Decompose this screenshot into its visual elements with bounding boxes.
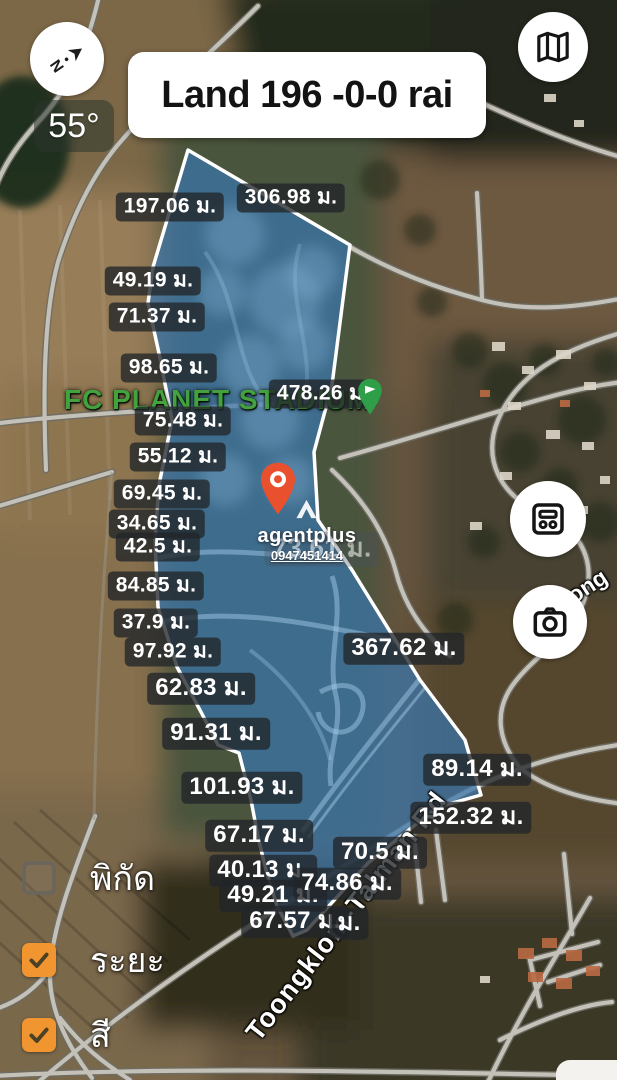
land-title-text: Land 196 -0-0 rai (161, 74, 452, 117)
watermark-phone: 0947451414 (258, 548, 357, 563)
measurement-label: 55.12 ม. (130, 442, 226, 471)
measurement-label: 98.65 ม. (121, 353, 217, 382)
checkmark-icon (26, 947, 52, 973)
measurement-label: 197.06 ม. (116, 192, 224, 221)
measurement-label: 75.48 ม. (135, 406, 231, 435)
layer-checkbox[interactable] (22, 1018, 56, 1052)
measurement-label: 101.93 ม. (181, 772, 302, 804)
measurement-label: 67.17 ม. (205, 820, 313, 852)
layer-checkbox-label: ระยะ (90, 933, 165, 987)
parcel-info-button[interactable] (510, 481, 586, 557)
map-style-button[interactable] (518, 12, 588, 82)
camera-button[interactable] (513, 585, 587, 659)
stadium-marker[interactable] (355, 376, 385, 423)
layer-checkbox[interactable] (22, 943, 56, 977)
compass-button[interactable]: N (30, 22, 104, 96)
layer-checkbox-label: สี (90, 1008, 111, 1062)
measurement-label: 42.5 ม. (116, 532, 200, 561)
measurement-label: 62.83 ม. (147, 673, 255, 705)
measurement-label: 306.98 ม. (237, 183, 345, 212)
layer-toggle-row: สี (22, 1008, 111, 1062)
map-icon (533, 27, 573, 67)
app-screen: FC PLANET STADIUM Toongklom-Talman Rd oo… (0, 0, 617, 1080)
checkmark-icon (26, 1022, 52, 1048)
watermark-logo-icon (294, 498, 320, 520)
measurement-label: 69.45 ม. (114, 479, 210, 508)
measurement-label: 97.92 ม. (125, 637, 221, 666)
svg-text:N: N (46, 57, 66, 76)
layer-toggle-row: ระยะ (22, 933, 165, 987)
heading-value: 55° (48, 107, 99, 146)
camera-icon (529, 601, 571, 643)
measurement-label: 89.14 ม. (423, 754, 531, 786)
compass-icon: N (44, 36, 90, 82)
heading-chip: 55° (34, 100, 114, 152)
measurement-label: 152.32 ม. (410, 802, 531, 834)
green-marker-icon (355, 376, 385, 418)
measurement-label: 367.62 ม. (343, 633, 464, 665)
measurement-label: ม. (329, 908, 368, 940)
land-title-chip: Land 196 -0-0 rai (128, 52, 486, 138)
measurement-label: 71.37 ม. (109, 302, 205, 331)
watermark-brand: agentplus (258, 525, 357, 548)
measurement-label: 49.19 ม. (105, 266, 201, 295)
measurement-label: 91.31 ม. (162, 718, 270, 750)
measurement-label: 37.9 ม. (114, 608, 198, 637)
measurement-label: 70.5 ม. (333, 837, 427, 869)
layer-checkbox-label: พิกัด (90, 851, 155, 905)
measurement-label: 84.85 ม. (108, 571, 204, 600)
measurement-label: 74.86 ม. (293, 868, 401, 900)
card-machine-icon (527, 498, 569, 540)
layer-toggle-row: พิกัด (22, 851, 155, 905)
layer-checkbox[interactable] (22, 861, 56, 895)
watermark: agentplus 0947451414 (258, 498, 357, 563)
